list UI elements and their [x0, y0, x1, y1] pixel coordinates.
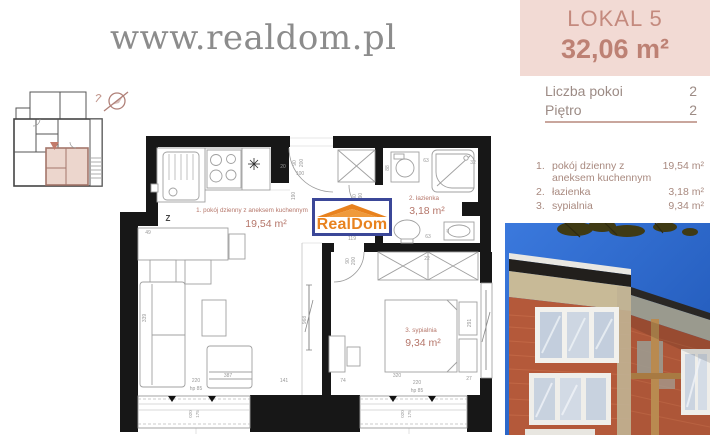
dim-label: 49: [145, 230, 151, 236]
room-area: 9,34 m²: [660, 200, 704, 212]
dim-label: 40: [445, 228, 450, 233]
room-area-label: 3,18 m²: [409, 205, 445, 217]
dim-label: 20: [280, 164, 286, 170]
room-number: 2.: [536, 186, 552, 198]
building-left: [509, 253, 631, 435]
stove: [207, 150, 241, 188]
dim-label: 175: [407, 410, 412, 418]
dim-label: 020: [400, 410, 405, 418]
dining-set: [138, 228, 245, 284]
coffee-table: [202, 300, 226, 336]
dim-label: 100: [296, 171, 305, 177]
dim-label: 220: [192, 378, 201, 384]
desk: [329, 336, 360, 372]
dim-label: 88: [385, 165, 391, 171]
shower: [432, 150, 474, 192]
window: [529, 373, 611, 425]
list-item: 3. sypialnia 9,34 m²: [536, 200, 704, 212]
dim-label: 220: [413, 380, 422, 386]
logo-text: RealDom: [315, 218, 389, 232]
room-number: 3.: [536, 200, 552, 212]
building-right: [631, 287, 710, 435]
room-name: pokój dzienny z aneksem kuchennym: [552, 160, 660, 184]
unit-area: 32,06 m²: [520, 34, 710, 65]
dim-label: hp 85: [190, 386, 203, 392]
room-area: 19,54 m²: [660, 160, 704, 184]
room-name: sypialnia: [552, 200, 660, 212]
dim-label: 020: [188, 410, 193, 418]
dim-label: hp 85: [411, 388, 424, 394]
room-number: 1.: [536, 160, 552, 184]
dim-label: 90: [292, 160, 298, 166]
dim-label: 141: [280, 378, 289, 384]
watermark-url: www.realdom.pl: [110, 18, 370, 58]
info-row-floor: Piętro 2: [545, 101, 697, 120]
dim-label: 968: [302, 316, 308, 325]
realdom-logo: RealDom: [312, 198, 392, 236]
dim-label: 27: [466, 376, 472, 382]
unit-info: Liczba pokoi 2 Piętro 2: [545, 82, 697, 120]
room-area: 3,18 m²: [660, 186, 704, 198]
window-b: [360, 396, 467, 428]
dim-label: 291: [467, 319, 473, 328]
dim-label: 200: [299, 159, 305, 168]
toilet: [394, 220, 420, 243]
dim-label: 175: [195, 410, 200, 418]
flyer-canvas: www.realdom.pl: [0, 0, 710, 435]
dim-label: 200: [351, 257, 357, 266]
room-name: łazienka: [552, 186, 660, 198]
info-row-rooms: Liczba pokoi 2: [545, 82, 697, 101]
info-value: 2: [689, 101, 697, 120]
info-value: 2: [689, 82, 697, 101]
list-item: 2. łazienka 3,18 m²: [536, 186, 704, 198]
washing-machine: [391, 152, 419, 182]
dim-label: 22: [424, 256, 430, 262]
fridge-label: Z: [166, 214, 171, 223]
window: [535, 307, 619, 363]
room-list: 1. pokój dzienny z aneksem kuchennym 19,…: [536, 160, 704, 214]
window-a: [138, 396, 250, 428]
highlighted-unit: [46, 142, 88, 185]
armchair: [207, 346, 252, 388]
info-label: Liczba pokoi: [545, 82, 623, 101]
dim-label: 63: [423, 158, 429, 164]
dim-label: 119: [348, 236, 356, 242]
building-photo: [505, 223, 710, 435]
dim-label: 339: [142, 314, 148, 323]
info-label: Piętro: [545, 101, 582, 120]
room-area-label: 9,34 m²: [405, 337, 441, 349]
sofa: [140, 282, 185, 387]
side-window: [481, 283, 492, 378]
dim-label: 63: [425, 234, 431, 240]
floor-plan: 1. pokój dzienny z aneksem kuchennym 19,…: [116, 108, 502, 435]
dim-label: 190: [291, 192, 297, 201]
dim-label: 387: [224, 373, 233, 379]
bed: [385, 300, 477, 372]
dim-label: 32: [470, 160, 476, 166]
room-label: 2. łazienka: [409, 195, 440, 202]
list-item: 1. pokój dzienny z aneksem kuchennym 19,…: [536, 160, 704, 184]
room-label: 1. pokój dzienny z aneksem kuchennym: [196, 207, 308, 214]
divider-line: [545, 121, 697, 123]
dim-label: 74: [340, 378, 346, 384]
hall-wardrobe: [338, 150, 375, 182]
dim-label: 320: [393, 373, 402, 379]
room-label: 3. sypialnia: [405, 327, 437, 334]
unit-title: LOKAL 5: [520, 6, 710, 32]
room-area-label: 19,54 m²: [245, 218, 287, 230]
unit-header: LOKAL 5 32,06 m²: [520, 0, 710, 76]
